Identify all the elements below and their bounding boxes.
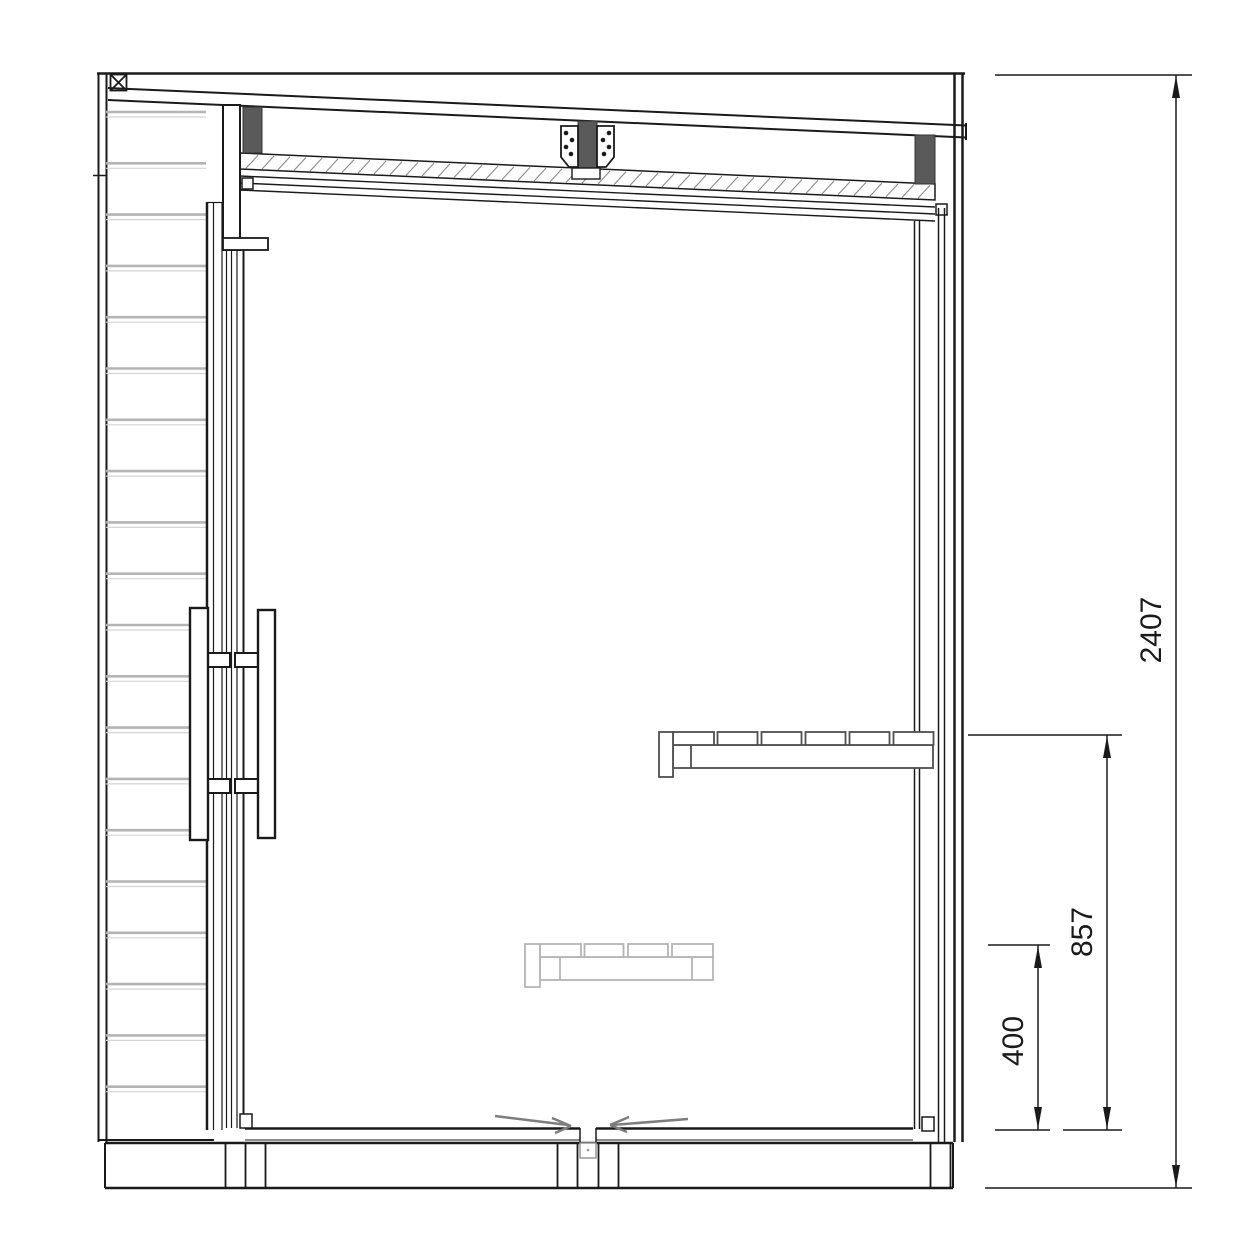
joist-hanger-left xyxy=(561,126,578,167)
floor-drain xyxy=(580,1143,596,1158)
door-leaf xyxy=(227,250,244,1128)
upper-bench xyxy=(659,732,934,777)
upper-bench-slats xyxy=(673,732,934,745)
airflow-arrow-left-icon xyxy=(495,1116,571,1133)
lower-bench-slats xyxy=(540,944,713,957)
door-handle-outer xyxy=(190,608,208,840)
dimension-label-bench: 857 xyxy=(1066,907,1099,957)
wall-cladding-lines xyxy=(106,112,206,1092)
door-assembly xyxy=(190,105,275,1130)
upper-bench-frame xyxy=(673,745,933,768)
rafter-center xyxy=(578,121,597,168)
lower-bench-frame xyxy=(540,957,713,980)
door-handles xyxy=(190,608,275,840)
joist-hanger-right xyxy=(597,126,614,167)
rafter-left xyxy=(243,107,262,153)
rafter-right xyxy=(915,135,935,184)
floor-assembly xyxy=(105,1114,953,1188)
dimension-bench-height: 857 xyxy=(968,735,1122,1130)
lower-bench-front-plank xyxy=(525,944,540,987)
dimension-lower-bench-height: 400 xyxy=(988,945,1050,1130)
door-post xyxy=(223,105,240,250)
airflow-arrows xyxy=(495,1116,688,1133)
door-handle-inner xyxy=(258,610,275,838)
technical-drawing: 2407 857 400 xyxy=(0,0,1242,1240)
upper-bench-front-plank xyxy=(659,732,673,777)
lower-bench xyxy=(525,944,713,987)
door-head xyxy=(223,238,268,250)
dimension-label-overall: 2407 xyxy=(1135,597,1168,664)
right-wall xyxy=(915,73,963,1142)
dimension-label-lower-bench: 400 xyxy=(997,1016,1030,1066)
